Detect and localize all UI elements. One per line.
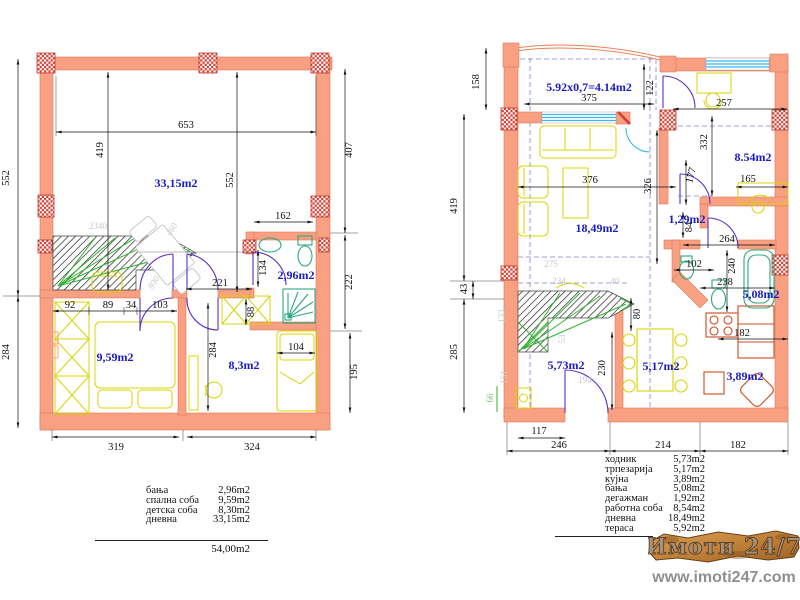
kitchen-fixtures xyxy=(704,306,775,408)
dim-122: 122 xyxy=(645,80,656,96)
dim-102: 102 xyxy=(686,259,702,270)
room-label-kitchen: 3,89m2 xyxy=(727,369,764,383)
windows xyxy=(542,58,769,152)
dim-284-outer: 284 xyxy=(1,343,12,360)
dim-221: 221 xyxy=(212,278,228,289)
desks xyxy=(697,73,788,213)
room-label-lobby: 1,29m2 xyxy=(669,212,706,226)
dim-552-inner: 552 xyxy=(225,172,236,188)
dim-177: 177 xyxy=(684,166,699,184)
left-total-rule xyxy=(95,540,268,541)
living-furniture xyxy=(518,126,616,236)
dim-375: 375 xyxy=(581,93,597,104)
room-label-living-right: 18,49m2 xyxy=(576,221,619,235)
watermark-brand: Имоти 24/7 xyxy=(648,534,800,560)
dim-34: 34 xyxy=(126,300,137,311)
dim-103: 103 xyxy=(152,300,168,311)
left-columns xyxy=(37,53,329,253)
watermark: Имоти 24/7 www.imoti247.com xyxy=(648,524,800,590)
faint-40: 40 xyxy=(611,276,621,286)
dim-80: 80 xyxy=(632,309,643,320)
right-total-rule xyxy=(555,536,653,537)
faint-53: 53 xyxy=(557,334,567,344)
dim-162: 162 xyxy=(275,211,291,222)
dim-419-left: 419 xyxy=(95,142,106,158)
dim-134: 134 xyxy=(258,259,269,276)
room-label-office: 8.54m2 xyxy=(735,150,772,164)
dim-419-right: 419 xyxy=(449,198,460,214)
dim-257: 257 xyxy=(716,98,732,109)
dim-104: 104 xyxy=(288,342,305,353)
dim-182-kitchen: 182 xyxy=(734,328,750,339)
room-label-living-left: 33,15m2 xyxy=(155,176,198,190)
dim-552-outer: 552 xyxy=(1,170,12,186)
dim-376: 376 xyxy=(582,175,598,186)
dim-285: 285 xyxy=(449,344,460,360)
left-plan-legend: бања2,96m2 спална соба9,59m2 детска соба… xyxy=(146,486,250,525)
dim-240: 240 xyxy=(727,258,738,274)
left-total-value: 54,00m2 xyxy=(146,543,250,555)
dim-246: 246 xyxy=(551,440,567,451)
dim-324: 324 xyxy=(244,442,261,453)
dim-92: 92 xyxy=(65,300,76,311)
dim-326: 326 xyxy=(643,178,654,194)
legend-value: 33,15m2 xyxy=(213,515,250,525)
right-plan-legend: ходник5,73m2 трпезарија5,17m2 кујна3,89m… xyxy=(605,455,705,533)
room-label-bath-right: 5,08m2 xyxy=(743,287,780,301)
room-label-kids: 8,3m2 xyxy=(229,358,260,372)
dim-214: 214 xyxy=(655,440,672,451)
faint-151: 151 xyxy=(499,370,509,384)
room-label-bath-left: 2,96m2 xyxy=(278,268,315,282)
dim-264: 264 xyxy=(719,234,736,245)
dim-332: 332 xyxy=(699,134,710,150)
dim-238: 238 xyxy=(717,277,733,288)
dim-284-inner: 284 xyxy=(208,341,219,358)
balcony-door-arc xyxy=(626,128,650,152)
room-label-bedroom: 9,59m2 xyxy=(97,350,134,364)
legend-row: дневна33,15m2 xyxy=(146,515,250,525)
legend-label: тераса xyxy=(605,524,634,534)
faint-133: 133 xyxy=(497,309,507,323)
room-label-hall: 5,73m2 xyxy=(548,358,585,372)
terrace-awning xyxy=(516,45,660,60)
dim-158: 158 xyxy=(471,74,482,90)
dim-407: 407 xyxy=(344,142,355,158)
dim-165: 165 xyxy=(740,174,756,185)
faint-234: 234 xyxy=(552,276,566,286)
dim-195: 195 xyxy=(349,364,360,380)
dim-66: 66 xyxy=(485,393,495,403)
room-label-terrace: 5.92x0,7=4.14m2 xyxy=(546,80,632,94)
faint-2340: 2340 xyxy=(89,221,108,231)
floor-plan-page: 653 419 552 552 284 407 222 195 162 221 … xyxy=(0,0,800,600)
dim-88: 88 xyxy=(246,307,257,318)
right-floor-plan: 5.92x0,7=4.14m2 375 158 122 257 332 419 … xyxy=(449,43,788,455)
dim-182-bottom: 182 xyxy=(730,440,746,451)
dim-653: 653 xyxy=(178,120,194,131)
watermark-svg: Имоти 24/7 www.imoti247.com xyxy=(648,524,800,600)
faint-275: 275 xyxy=(544,259,558,269)
dim-222: 222 xyxy=(344,274,355,290)
dim-230: 230 xyxy=(597,360,608,376)
dim-43: 43 xyxy=(459,284,470,295)
left-floor-plan: 653 419 552 552 284 407 222 195 162 221 … xyxy=(1,53,362,453)
room-label-dining: 5,17m2 xyxy=(643,359,680,373)
dim-319: 319 xyxy=(108,442,124,453)
legend-label: дневна xyxy=(146,515,177,525)
faint-194: 194 xyxy=(578,375,592,385)
watermark-site: www.imoti247.com xyxy=(651,569,795,586)
dim-89: 89 xyxy=(103,300,114,311)
dim-117: 117 xyxy=(531,426,546,437)
